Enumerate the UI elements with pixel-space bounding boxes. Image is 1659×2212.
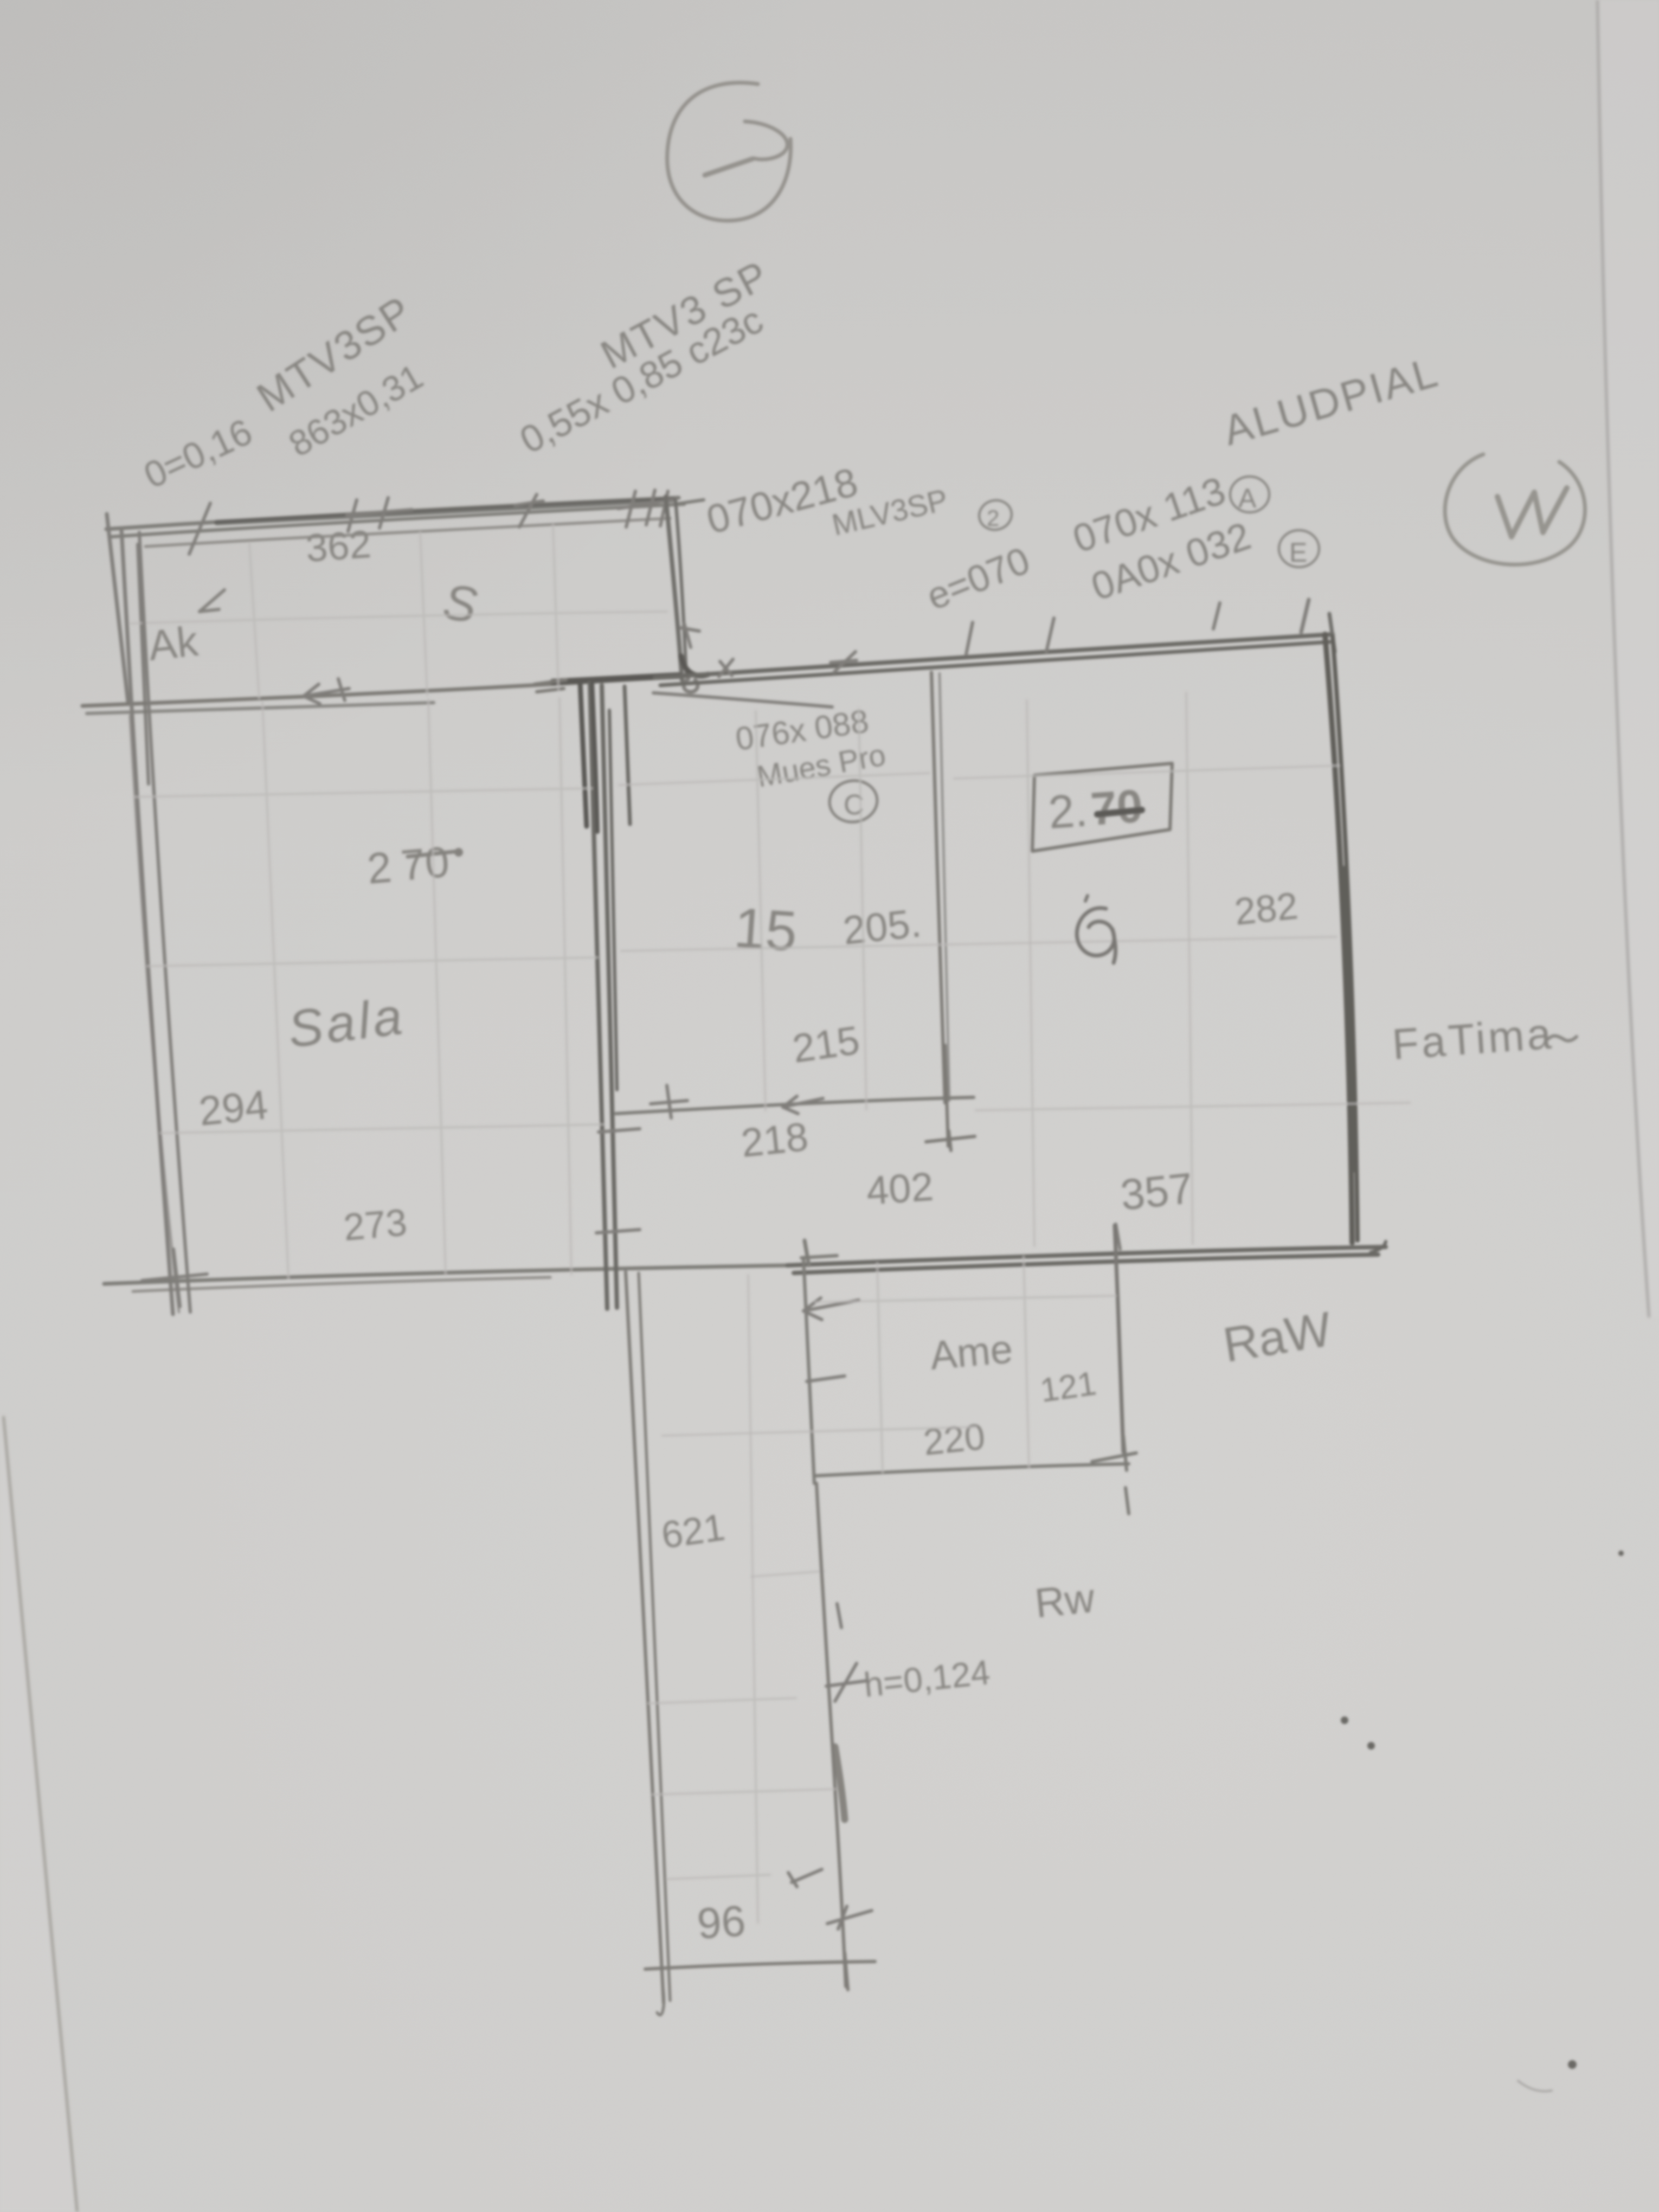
svg-text:282: 282 [1232,884,1300,933]
svg-text:357: 357 [1118,1163,1195,1219]
svg-text:2.: 2. [1047,784,1089,839]
svg-text:121: 121 [1038,1365,1098,1410]
svg-text:621: 621 [659,1506,728,1556]
svg-text:A: A [1238,483,1257,513]
svg-text:70: 70 [399,838,451,890]
svg-text:294: 294 [197,1082,270,1135]
svg-text:215: 215 [790,1017,863,1071]
svg-text:Rw: Rw [1033,1575,1097,1627]
svg-text:Ak: Ak [146,617,201,670]
svg-text:2: 2 [987,505,999,531]
svg-text:218: 218 [739,1114,810,1165]
svg-text:362: 362 [305,523,372,570]
svg-text:96: 96 [696,1896,747,1948]
svg-text:402: 402 [865,1164,935,1213]
svg-text:273: 273 [342,1201,409,1249]
svg-text:E: E [1289,537,1307,568]
svg-text:Ame: Ame [928,1326,1014,1378]
svg-text:220: 220 [922,1416,987,1463]
svg-text:2: 2 [365,843,394,893]
svg-text:15: 15 [732,896,799,963]
